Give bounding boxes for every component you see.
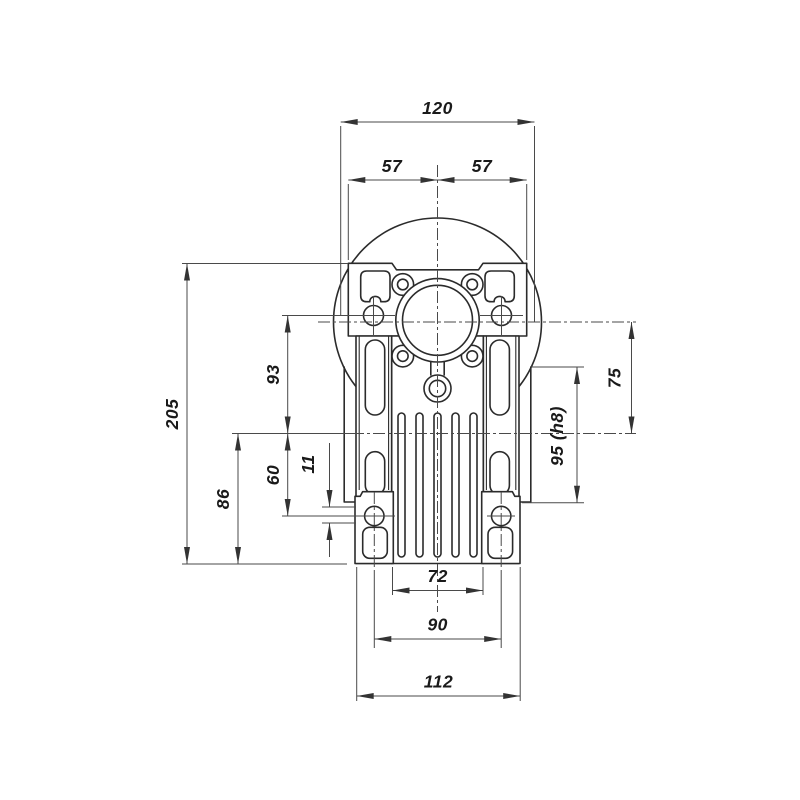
dim-label-205: 205 [162,399,182,431]
dim-label-95h8: 95 (h8) [547,406,567,466]
dim-label-72: 72 [427,566,447,586]
drawing-page: 120 57 57 205 93 86 60 11 75 95 (h8) 72 … [0,0,800,800]
dim-label-90: 90 [427,615,447,635]
dim-label-57-left: 57 [382,156,403,176]
dim-label-93: 93 [263,364,283,384]
dim-label-11: 11 [298,454,318,473]
technical-drawing: 120 57 57 205 93 86 60 11 75 95 (h8) 72 … [0,0,800,800]
dim-label-60: 60 [263,465,283,485]
dim-label-86: 86 [213,489,233,509]
dim-label-57-right: 57 [472,156,493,176]
dim-label-112: 112 [424,672,453,692]
dim-label-75: 75 [605,368,625,388]
dim-label-120: 120 [422,98,453,118]
